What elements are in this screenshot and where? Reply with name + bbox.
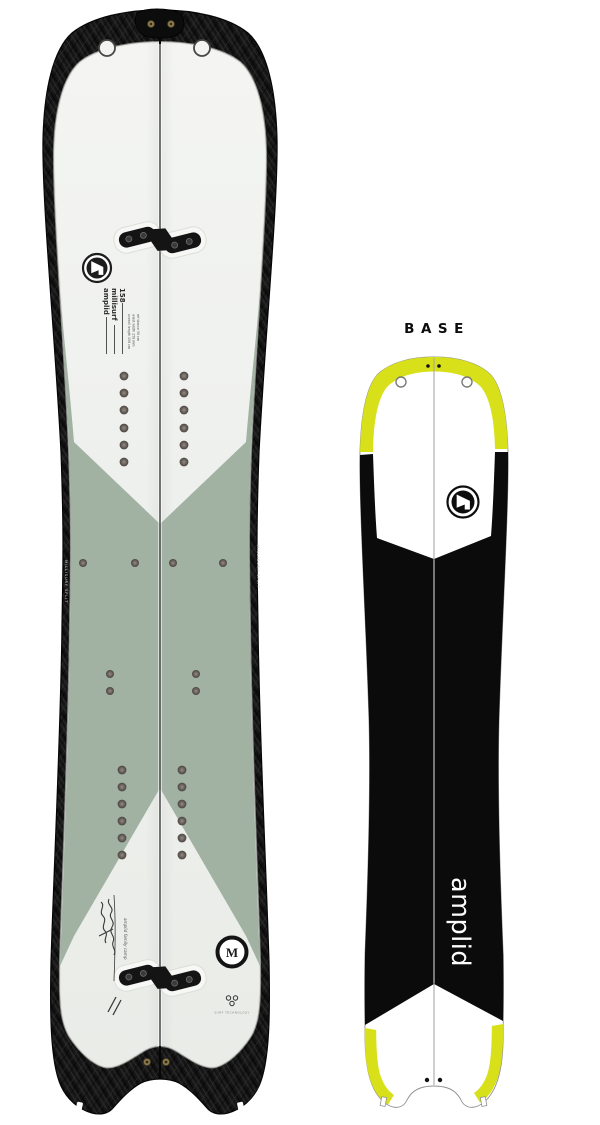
model-text: millisurf xyxy=(110,288,118,321)
amplid-logo-topsheet xyxy=(83,254,111,282)
amplid-logo-base xyxy=(448,487,479,518)
tail-badge: M xyxy=(218,938,247,967)
svg-text:ref stance 56 cm: ref stance 56 cm xyxy=(136,314,140,341)
leash-hole-left xyxy=(99,40,115,56)
base-tail-dot-right xyxy=(438,1078,442,1082)
base-board: BASE amplid xyxy=(360,321,508,1107)
size-text: 158 xyxy=(118,288,126,303)
badge-letter: M xyxy=(226,945,238,960)
topsheet-board: amplid millisurf 158 overall length 158 … xyxy=(43,9,277,1115)
base-leash-hole-left xyxy=(396,377,406,387)
base-tail-slot-right xyxy=(480,1097,486,1107)
base-nose-dot-left xyxy=(426,364,430,368)
base-nose-dot-right xyxy=(437,364,441,368)
base-leash-hole-right xyxy=(462,377,472,387)
svg-text:overall length 158 cm: overall length 158 cm xyxy=(127,314,131,349)
handwriting-text: amplid family camp xyxy=(123,918,128,960)
base-brand-text: amplid xyxy=(445,877,475,967)
base-view-label: BASE xyxy=(404,321,470,337)
brand-text: amplid xyxy=(102,288,110,315)
base-tail-slot-left xyxy=(380,1097,386,1107)
leash-hole-right xyxy=(194,40,210,56)
svg-text:waist width 258 mm: waist width 258 mm xyxy=(132,314,136,346)
seam-shade-left xyxy=(146,42,160,1052)
seam-shade-right xyxy=(160,42,174,1052)
edge-text-right: MILLISURF SPLIT xyxy=(256,545,261,588)
nose-clip xyxy=(135,9,184,38)
product-image-canvas: amplid millisurf 158 overall length 158 … xyxy=(0,0,600,1125)
base-tail-dot-left xyxy=(425,1078,429,1082)
tech-label: SURF TECHNOLOGY xyxy=(214,1011,249,1015)
edge-text-left: MILLISURF SPLIT xyxy=(64,560,69,603)
